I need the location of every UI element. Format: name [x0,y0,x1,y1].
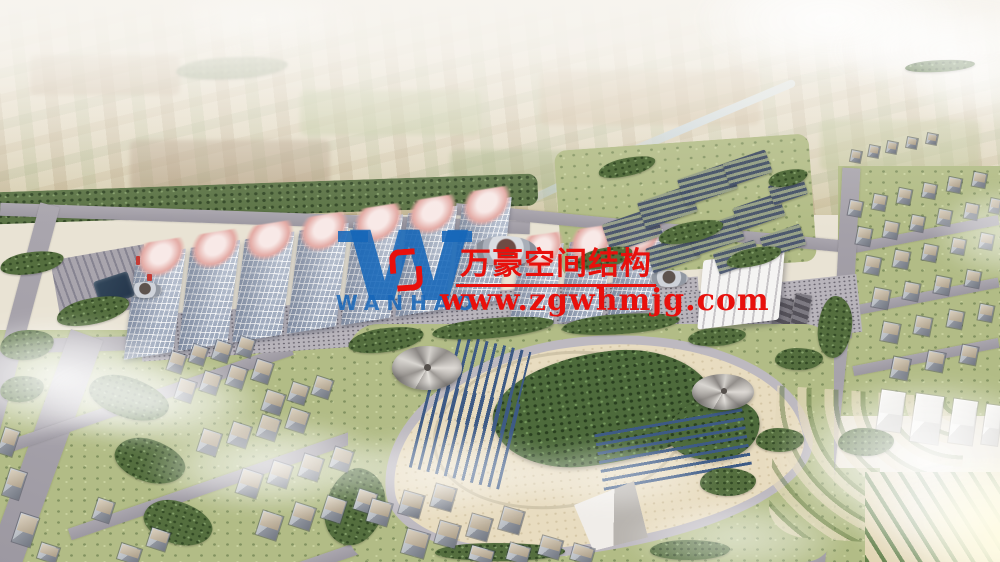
building [921,182,939,201]
building [932,275,952,297]
logo-emblem [386,246,423,294]
cone-pavilion [692,374,754,410]
red-sculpture [147,274,152,281]
building [879,320,902,344]
cone-pavilion [392,346,462,390]
building [909,214,927,234]
red-flag [136,256,140,265]
building [847,199,865,219]
logo-bracket-right [442,231,472,242]
building [885,140,899,155]
building [912,314,933,337]
building [901,281,921,303]
aerial-render-scene: W WANHAO 万豪空间结构 www.zgwhmjg.com [0,0,1000,562]
exhibition-hall [232,231,294,342]
building [881,220,900,241]
building [958,343,979,366]
building [946,176,964,195]
building [924,349,947,373]
building [976,303,995,324]
building [891,249,911,271]
building [896,187,914,207]
logo-bracket-left [338,231,368,242]
building [862,255,882,277]
building [871,193,889,213]
building [945,309,965,331]
building [925,132,939,146]
watermark-company-text: 万豪空间结构 [456,247,656,287]
building [849,149,863,164]
exhibition-hall [178,240,240,351]
watermark-url-text: www.zgwhmjg.com [440,284,770,317]
building [905,136,919,150]
building [867,144,881,159]
